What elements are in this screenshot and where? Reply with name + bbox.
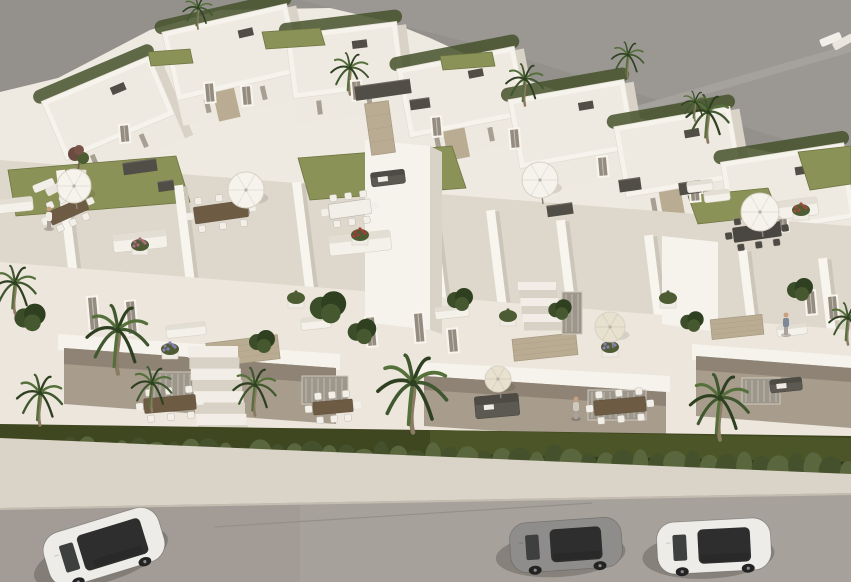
- palm-crown: [523, 77, 527, 81]
- shrub: [795, 287, 809, 301]
- tree-canopy: [74, 145, 84, 155]
- flower: [666, 290, 669, 293]
- person-legs: [574, 410, 578, 419]
- shrub: [688, 319, 701, 332]
- render-canvas: [0, 0, 851, 582]
- chair: [755, 241, 763, 249]
- flower: [602, 346, 605, 349]
- person-head: [784, 313, 789, 318]
- flower: [793, 209, 796, 212]
- chair: [186, 212, 194, 220]
- flower: [353, 230, 356, 233]
- flower: [356, 233, 359, 236]
- flower: [509, 310, 512, 313]
- stair-step: [518, 282, 556, 291]
- chair: [733, 218, 741, 226]
- palm-crown: [13, 281, 17, 285]
- palm-crown: [626, 53, 629, 56]
- palm-crown: [150, 381, 154, 385]
- chair: [354, 401, 362, 409]
- flower: [136, 243, 139, 246]
- chair: [330, 415, 338, 423]
- person-body: [573, 402, 579, 411]
- palm-crown: [410, 380, 417, 387]
- chair: [187, 411, 195, 419]
- flower: [141, 239, 144, 242]
- stair-step: [196, 414, 246, 426]
- chair: [647, 400, 655, 408]
- chair: [240, 219, 248, 227]
- chair: [781, 224, 789, 232]
- chair: [344, 414, 352, 422]
- flower: [603, 342, 606, 345]
- flower: [132, 244, 135, 247]
- chair: [344, 192, 352, 200]
- flower: [168, 341, 171, 344]
- window: [430, 115, 444, 138]
- chair: [185, 386, 193, 394]
- flower: [162, 348, 165, 351]
- car-windshield: [525, 534, 540, 560]
- chair: [328, 391, 336, 399]
- stair-step: [191, 369, 241, 381]
- flower: [163, 344, 166, 347]
- flower: [361, 229, 364, 232]
- chair: [371, 201, 379, 209]
- parasol-hub: [496, 377, 499, 380]
- chair: [637, 413, 645, 421]
- chair: [198, 225, 206, 233]
- flower: [166, 347, 169, 350]
- person-head: [574, 397, 579, 402]
- person-body: [783, 318, 789, 327]
- chair: [215, 194, 223, 202]
- pillow: [484, 404, 494, 410]
- stair-step: [189, 357, 239, 369]
- rooftop-lawn: [148, 49, 193, 66]
- chair: [617, 415, 625, 423]
- flower: [802, 204, 805, 207]
- flower: [500, 315, 503, 318]
- chair: [167, 413, 175, 421]
- chair: [635, 388, 643, 396]
- person-head: [47, 207, 52, 212]
- window: [240, 84, 254, 107]
- chair: [359, 190, 367, 198]
- chair: [586, 405, 594, 413]
- palm-crown: [253, 383, 257, 387]
- chair: [725, 232, 733, 240]
- palm-crown: [706, 110, 710, 114]
- flower: [501, 311, 504, 314]
- flower: [797, 208, 800, 211]
- chair: [595, 391, 603, 399]
- chair: [321, 209, 329, 217]
- shrub: [357, 329, 372, 344]
- chair: [363, 216, 371, 224]
- shrub: [257, 339, 271, 353]
- flower: [288, 297, 291, 300]
- window: [596, 155, 610, 178]
- chair: [316, 416, 324, 424]
- flower: [669, 292, 672, 295]
- chair: [314, 392, 322, 400]
- flower: [794, 205, 797, 208]
- chair: [329, 194, 337, 202]
- flower: [799, 202, 802, 205]
- architectural-render: [0, 0, 851, 582]
- flower: [292, 296, 295, 299]
- daybed: [474, 393, 520, 419]
- flower: [506, 308, 509, 311]
- pillow: [776, 383, 786, 389]
- chair: [305, 405, 313, 413]
- window: [446, 327, 460, 354]
- chair: [348, 218, 356, 226]
- flower: [661, 293, 664, 296]
- palm-crown: [197, 7, 200, 10]
- person-legs: [784, 326, 788, 335]
- palm-crown: [348, 66, 352, 70]
- chair: [194, 197, 202, 205]
- shrub: [24, 314, 41, 331]
- palm-crown: [115, 327, 121, 333]
- stair-core-shadow-face: [430, 146, 442, 334]
- flower: [133, 240, 136, 243]
- flower: [358, 227, 361, 230]
- chair: [333, 220, 341, 228]
- stair-step: [519, 290, 557, 299]
- chair: [147, 415, 155, 423]
- palm-crown: [38, 391, 42, 395]
- shrub: [556, 307, 569, 320]
- stair-step: [188, 346, 238, 358]
- parasol-hub: [538, 178, 541, 181]
- chair: [197, 398, 205, 406]
- person-legs: [47, 220, 51, 229]
- flower: [297, 292, 300, 295]
- flower: [352, 234, 355, 237]
- chair: [219, 222, 227, 230]
- chair: [773, 238, 781, 246]
- flower: [138, 237, 141, 240]
- parasol-hub: [758, 210, 761, 213]
- chair: [615, 389, 623, 397]
- shrub: [321, 304, 341, 324]
- stair-step: [524, 322, 562, 331]
- window: [508, 127, 522, 150]
- flower: [294, 290, 297, 293]
- palm-crown: [846, 316, 850, 320]
- flower: [606, 345, 609, 348]
- chair: [342, 390, 350, 398]
- chair: [136, 403, 144, 411]
- window: [118, 123, 132, 144]
- rooftop-lawn: [262, 28, 325, 49]
- window: [203, 81, 217, 104]
- flower: [504, 314, 507, 317]
- parasol-hub: [244, 188, 247, 191]
- flower: [289, 293, 292, 296]
- parasol-hub: [72, 184, 75, 187]
- chair: [597, 417, 605, 425]
- car-windshield: [672, 534, 687, 561]
- parasol-hub: [608, 325, 611, 328]
- chair: [737, 243, 745, 251]
- flower: [660, 297, 663, 300]
- shrub: [455, 297, 469, 311]
- palm-crown: [717, 395, 723, 401]
- flower: [171, 343, 174, 346]
- palm-crown: [694, 101, 697, 104]
- person-body: [46, 212, 52, 221]
- flower: [664, 296, 667, 299]
